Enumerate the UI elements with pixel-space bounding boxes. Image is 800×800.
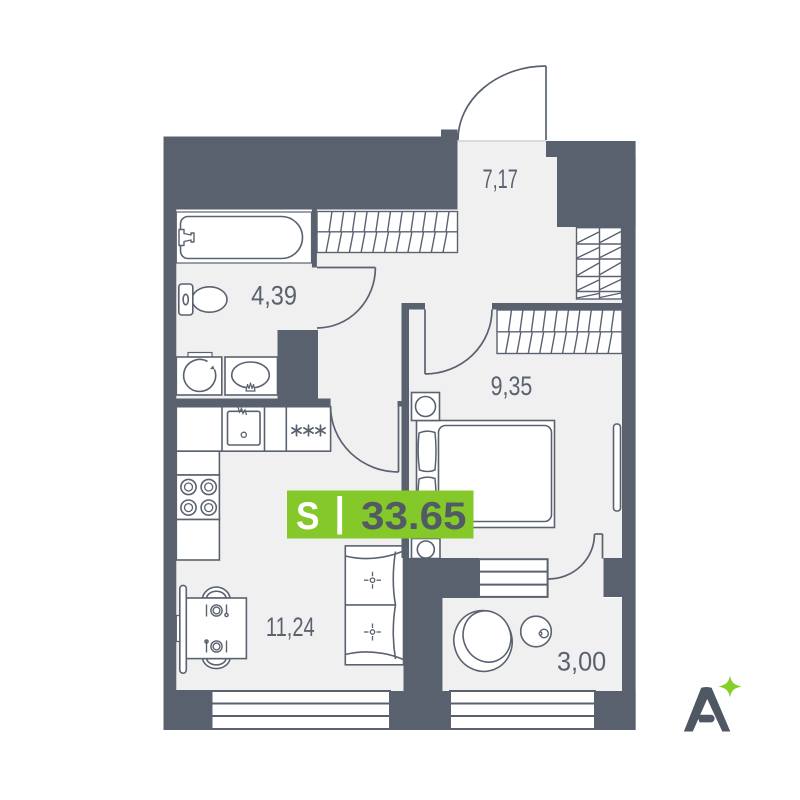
svg-text:33.65: 33.65 — [361, 495, 467, 538]
svg-text:S: S — [296, 495, 320, 538]
svg-text:9,35: 9,35 — [491, 371, 533, 401]
svg-text:4,39: 4,39 — [251, 281, 297, 311]
svg-text:3,00: 3,00 — [557, 647, 606, 677]
svg-text:7,17: 7,17 — [483, 164, 518, 194]
svg-text:11,24: 11,24 — [266, 612, 315, 642]
